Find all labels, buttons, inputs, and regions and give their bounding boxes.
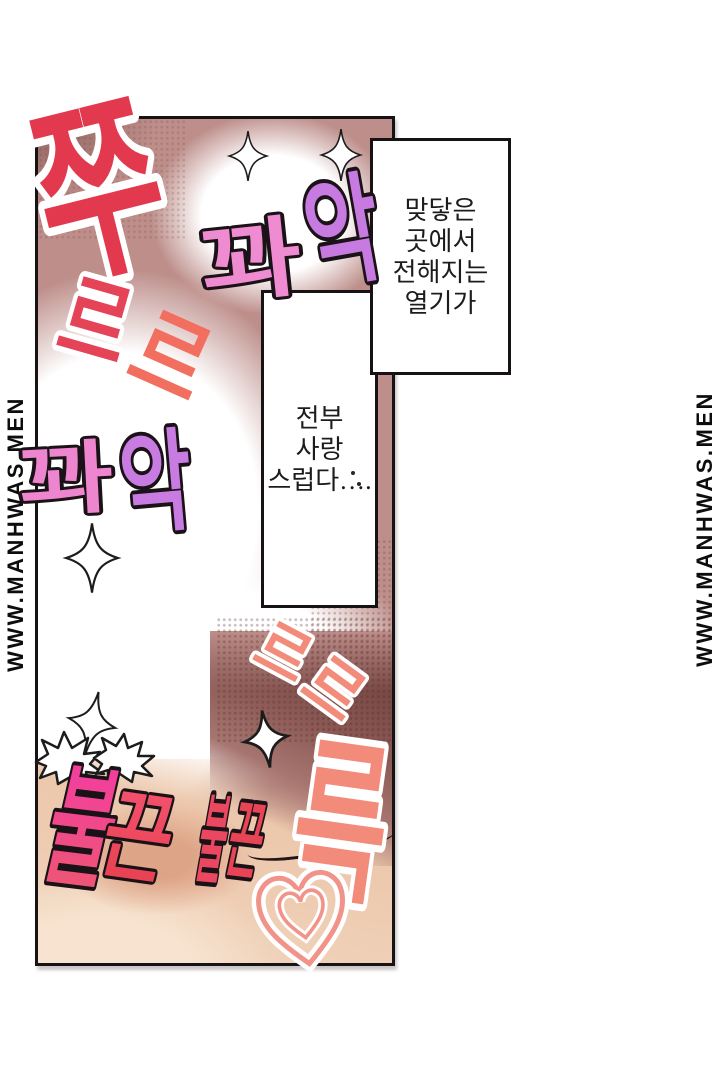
dot-decoration xyxy=(351,471,355,475)
sfx-text-jju: 쭈 xyxy=(100,192,102,194)
sfx-text-kwaak: 악 xyxy=(343,233,345,235)
sfx-text-reuk: 륵 xyxy=(341,826,343,828)
narration-box-1: 맞닿은 곳에서 전해지는 열기가 xyxy=(370,138,511,375)
sfx-text-reu: 르 xyxy=(283,653,285,655)
sfx-text-bulkkeun: 불 xyxy=(82,830,84,832)
narration-box-2: 전부 사랑 스럽다…. xyxy=(261,290,378,608)
dialogue-line: 곳에서 xyxy=(405,226,477,257)
sparkle-icon xyxy=(56,518,128,598)
heart-icon xyxy=(303,918,305,920)
sfx-text-kwaak: 악 xyxy=(156,484,158,486)
dialogue-line: 맞닿은 xyxy=(405,195,477,226)
svg-text:꽈: 꽈 xyxy=(195,208,306,316)
sfx-text-bulkkeun: 끈 xyxy=(138,838,140,840)
svg-text:꽈: 꽈 xyxy=(16,434,115,527)
sparkle-icon xyxy=(231,700,300,778)
watermark-right: WWW.MANHWAS.MEN xyxy=(692,391,718,667)
dialogue-line: 열기가 xyxy=(405,288,477,319)
sfx-text-reu: 르 xyxy=(333,690,335,692)
sfx-text-reu: 르 xyxy=(170,358,172,360)
comic-page: WWW.MANHWAS.MEN WWW.MANHWAS.MEN 전부 사랑 스럽… xyxy=(0,0,720,1080)
sparkle-icon xyxy=(222,124,274,188)
dot-decoration xyxy=(357,482,361,486)
svg-text:악: 악 xyxy=(115,419,197,548)
sfx-text-bulkkeun: 끈 xyxy=(246,842,248,844)
sfx-text-bulkkeun: 불 xyxy=(213,842,215,844)
sfx-text-kwaak: 꽈 xyxy=(251,262,253,264)
dialogue-line: 전부 xyxy=(296,403,344,434)
sfx-text-reu: 르 xyxy=(95,324,97,326)
dialogue-line: 스럽다…. xyxy=(267,465,371,496)
dialogue-line: 전해지는 xyxy=(393,257,489,288)
dialogue-line: 사랑 xyxy=(296,434,344,465)
sfx-text-kwaak: 꽈 xyxy=(66,480,68,482)
